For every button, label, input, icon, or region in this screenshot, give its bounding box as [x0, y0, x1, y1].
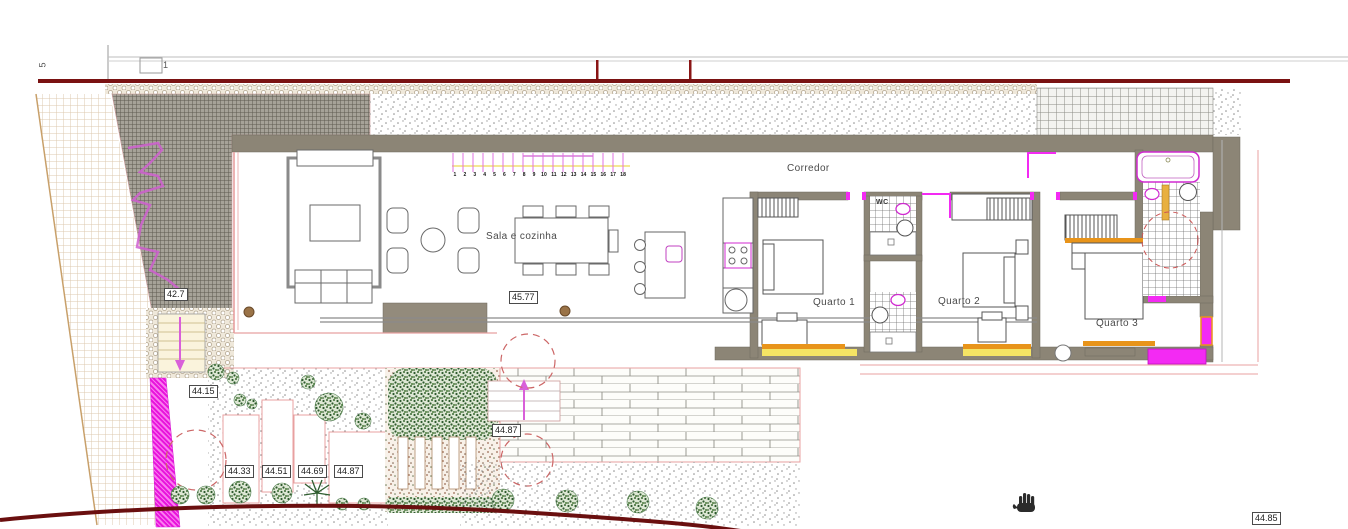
tick-number: 7	[509, 171, 519, 179]
cad-viewport[interactable]: 5 1 Corredor Sala e cozinha Quarto 1 Qua…	[0, 0, 1348, 529]
elevation-entry: 44.15	[189, 385, 218, 398]
dining-chair	[523, 206, 543, 217]
kitchen-counter	[723, 198, 753, 313]
boundary-red-line	[38, 79, 1290, 83]
numbered-ticks	[452, 153, 630, 172]
large-shrub-mass	[388, 368, 498, 440]
elevation-bed2: 44.51	[262, 465, 291, 478]
door-jamb	[862, 192, 866, 200]
nightstand	[1072, 253, 1085, 269]
tick-number: 8	[519, 171, 529, 179]
elevation-bed1: 44.33	[225, 465, 254, 478]
frame-mark-detail: 1	[163, 60, 168, 70]
dining-chair	[589, 206, 609, 217]
stool	[635, 240, 646, 251]
bed	[1085, 253, 1143, 319]
wall-wc-east	[916, 196, 922, 352]
dresser	[978, 318, 1006, 342]
nightstand	[1016, 306, 1028, 320]
tick-numbers-row: 123456789101112131415161718	[450, 171, 628, 179]
elevation-ramp: 42.7	[164, 288, 188, 301]
tick-number: 9	[529, 171, 539, 179]
tick-number: 17	[608, 171, 618, 179]
tick-number: 2	[460, 171, 470, 179]
hand-pan-cursor	[1013, 493, 1035, 512]
pillow	[1004, 257, 1015, 303]
wall-wc-west	[864, 196, 870, 352]
label-bedroom3: Quarto 3	[1096, 318, 1138, 329]
tick-number: 6	[499, 171, 509, 179]
tick-number: 11	[549, 171, 559, 179]
terrace-bed	[262, 400, 293, 492]
bedroom2-furniture	[952, 194, 1032, 342]
towel-rail	[1162, 185, 1169, 220]
side-table-round	[421, 228, 445, 252]
door-jamb	[846, 192, 850, 200]
label-bedroom2: Quarto 2	[938, 296, 980, 307]
label-corridor: Corredor	[787, 163, 830, 174]
dining-chair	[589, 264, 609, 275]
bathroom	[1137, 152, 1200, 302]
kitchen	[635, 198, 754, 313]
bathtub	[1137, 152, 1199, 182]
north-wall	[232, 135, 1213, 152]
east-door-magenta	[1201, 317, 1212, 345]
window-magenta	[1148, 349, 1206, 364]
armchair	[387, 248, 408, 273]
wc2-sink	[872, 307, 888, 323]
door-swing-corner	[1028, 153, 1056, 178]
detail-mark-box	[140, 58, 162, 73]
wc-rooms	[870, 196, 916, 352]
tick-number: 14	[579, 171, 589, 179]
kitchen-island	[645, 232, 685, 298]
section-tick	[596, 60, 599, 79]
tick-number: 12	[559, 171, 569, 179]
tick-number: 16	[598, 171, 608, 179]
wardrobe	[758, 198, 798, 217]
armchair	[458, 248, 479, 273]
sheet-frame	[38, 45, 1348, 83]
sofa	[295, 270, 372, 303]
window-sill	[762, 344, 845, 349]
column	[244, 307, 254, 317]
pebble-edging-strip	[105, 84, 1037, 94]
window-yellow	[762, 349, 857, 356]
pillow	[763, 244, 774, 290]
elevation-deck: 44.87	[492, 424, 521, 437]
wall-wc-divider	[864, 255, 922, 261]
elevation-living: 45.77	[509, 291, 538, 304]
toilet	[891, 295, 905, 306]
gravel-band-north	[370, 93, 1037, 136]
stool	[635, 284, 646, 295]
door-jamb	[1133, 192, 1137, 200]
toilet	[896, 204, 910, 215]
corridor-wall	[1060, 192, 1135, 200]
dresser-top	[982, 312, 1002, 320]
tv-sideboard	[297, 150, 373, 166]
window-sill	[1083, 341, 1155, 346]
elevation-bed4: 44.87	[334, 465, 363, 478]
wc2-vanity	[870, 332, 916, 352]
dining-chair	[609, 230, 618, 252]
tick-number: 1	[450, 171, 460, 179]
tick-number: 5	[490, 171, 500, 179]
garden	[166, 334, 800, 526]
stool	[635, 262, 646, 273]
label-bedroom1: Quarto 1	[813, 297, 855, 308]
elevation-edge-clipped: 44.85	[1252, 512, 1281, 525]
toilet	[1145, 189, 1159, 200]
gravel-patch-ne	[1213, 88, 1241, 135]
column	[560, 306, 570, 316]
sink	[1180, 184, 1197, 201]
tick-number: 4	[480, 171, 490, 179]
tick-number: 13	[569, 171, 579, 179]
tick-number: 15	[588, 171, 598, 179]
window-sill	[963, 344, 1031, 349]
bedroom1-furniture	[758, 198, 823, 345]
tick-number: 3	[470, 171, 480, 179]
wardrobe	[1065, 215, 1117, 240]
elevation-bed3: 44.69	[298, 465, 327, 478]
section-tick	[689, 60, 692, 79]
wall-bedroom2-3	[1032, 192, 1040, 358]
door-jamb	[1056, 192, 1060, 200]
nightstand	[1016, 240, 1028, 254]
floor-plan-drawing	[0, 0, 1348, 529]
wc-vanity	[870, 232, 916, 255]
dining-chair	[556, 206, 576, 217]
ne-corner-wall	[1213, 137, 1240, 230]
label-living: Sala e cozinha	[486, 231, 557, 242]
frame-mark-left: 5	[38, 62, 48, 67]
door-jamb	[1030, 192, 1034, 200]
label-wc: WC	[876, 199, 889, 206]
dining-chair	[523, 264, 543, 275]
wc-sink	[897, 220, 913, 236]
tick-number: 10	[539, 171, 549, 179]
bathroom-door	[1148, 296, 1166, 302]
armchair	[387, 208, 408, 233]
terrace-column	[1055, 345, 1071, 361]
tiled-patio-ne	[1037, 88, 1213, 137]
coffee-table	[310, 205, 360, 241]
dresser	[762, 320, 807, 345]
bedroom2-door	[922, 194, 950, 218]
armchair	[458, 208, 479, 233]
dining-chair	[556, 264, 576, 275]
dresser-top	[777, 313, 797, 321]
wardrobe	[987, 198, 1032, 220]
tick-number: 18	[618, 171, 628, 179]
